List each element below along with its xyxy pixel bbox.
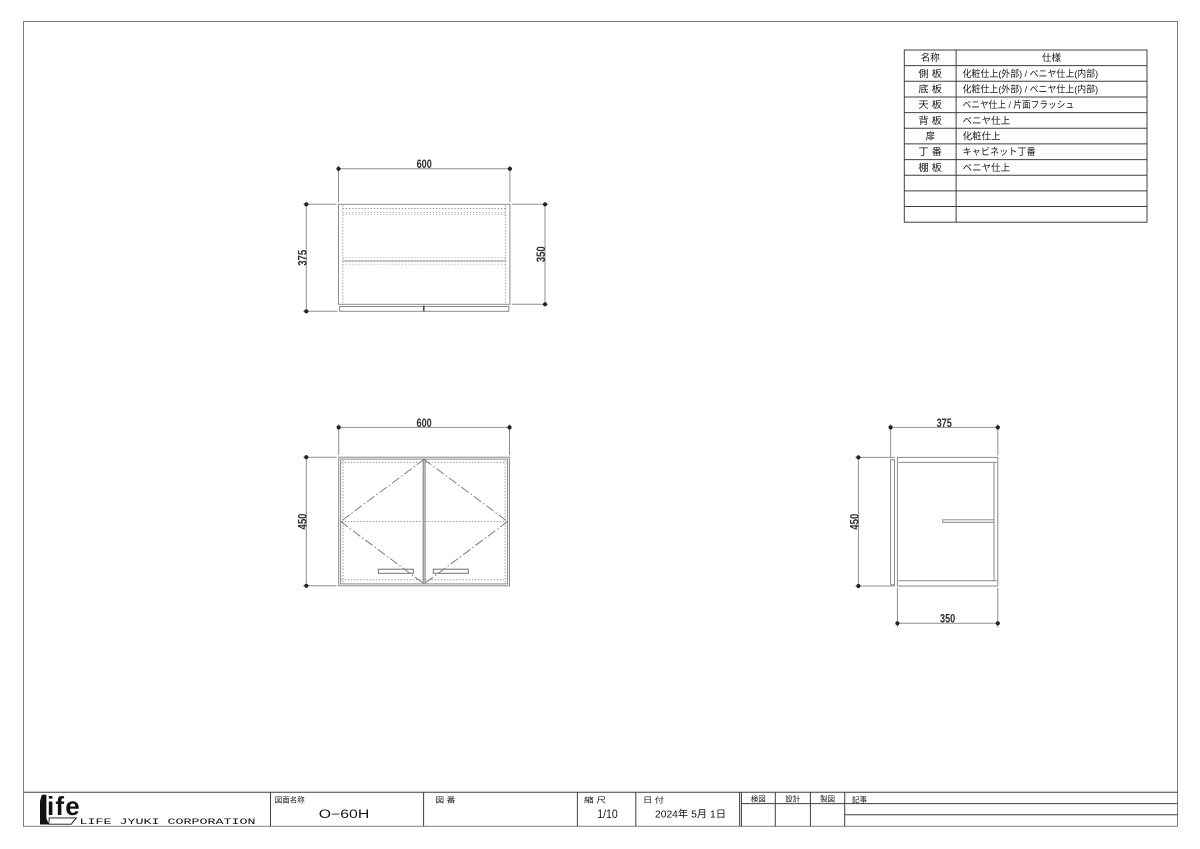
svg-text:450: 450	[296, 513, 310, 529]
svg-text:側 板: 側 板	[918, 68, 942, 80]
svg-text:600: 600	[417, 157, 432, 171]
svg-text:記事: 記事	[852, 794, 867, 804]
svg-text:名称: 名称	[921, 52, 941, 64]
svg-text:丁 番: 丁 番	[918, 146, 942, 158]
svg-text:ife: ife	[47, 791, 81, 821]
svg-text:扉: 扉	[925, 131, 935, 143]
svg-text:1/10: 1/10	[597, 807, 618, 821]
svg-text:天 板: 天 板	[918, 99, 942, 111]
svg-text:375: 375	[937, 416, 952, 430]
svg-text:O−60H: O−60H	[319, 809, 370, 821]
svg-text:LIFE JYUKI CORPORATION: LIFE JYUKI CORPORATION	[80, 818, 256, 827]
svg-text:350: 350	[534, 246, 548, 262]
svg-text:縮 尺: 縮 尺	[584, 794, 607, 804]
svg-text:検図: 検図	[751, 794, 766, 804]
svg-text:背 板: 背 板	[918, 115, 942, 127]
svg-text:化粧仕上(外部) / ベニヤ仕上(内部): 化粧仕上(外部) / ベニヤ仕上(内部)	[963, 68, 1099, 80]
svg-text:設計: 設計	[785, 794, 800, 804]
svg-text:図面名称: 図面名称	[275, 794, 305, 804]
svg-text:底 板: 底 板	[918, 84, 942, 96]
svg-text:ベニヤ仕上: ベニヤ仕上	[963, 162, 1011, 174]
svg-text:製図: 製図	[820, 794, 835, 804]
svg-text:ベニヤ仕上 / 片面フラッシュ: ベニヤ仕上 / 片面フラッシュ	[963, 99, 1075, 111]
svg-text:日 付: 日 付	[643, 794, 665, 804]
svg-text:化粧仕上: 化粧仕上	[963, 131, 1001, 143]
svg-text:図 番: 図 番	[435, 794, 456, 804]
svg-text:2024年 5月 1日: 2024年 5月 1日	[655, 807, 726, 820]
svg-text:600: 600	[417, 416, 432, 430]
svg-text:化粧仕上(外部) / ベニヤ仕上(内部): 化粧仕上(外部) / ベニヤ仕上(内部)	[963, 84, 1099, 96]
svg-text:375: 375	[296, 250, 310, 266]
svg-text:棚 板: 棚 板	[918, 162, 942, 174]
svg-text:450: 450	[848, 513, 862, 529]
svg-text:仕様: 仕様	[1042, 52, 1062, 64]
svg-text:350: 350	[940, 612, 955, 626]
svg-text:キャビネット丁番: キャビネット丁番	[963, 146, 1036, 158]
svg-text:ベニヤ仕上: ベニヤ仕上	[963, 115, 1011, 127]
